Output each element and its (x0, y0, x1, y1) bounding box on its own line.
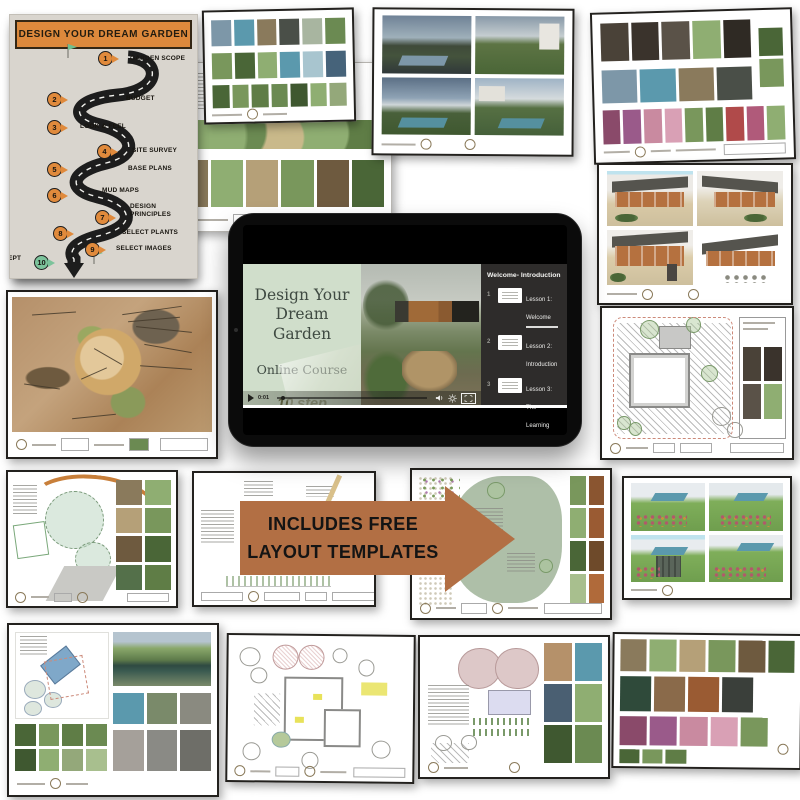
photo-thumb (680, 717, 708, 746)
lesson-label: Lesson 3: The Learning Notion (526, 387, 552, 435)
house-outline (12, 521, 49, 559)
photo-thumb (235, 52, 255, 79)
photo-thumb (631, 22, 660, 61)
module-header: Welcome- Introduction (487, 272, 561, 279)
plan-notes (428, 685, 469, 727)
shrub (744, 214, 766, 223)
planting-row (473, 729, 529, 736)
photo-thumb (619, 676, 651, 711)
photo-thumb (544, 725, 572, 763)
photo-thumb (281, 160, 313, 207)
wall (714, 192, 774, 207)
course-player: Design Your Dream Garden Online Course 1… (243, 264, 567, 405)
pin-tip (61, 192, 68, 200)
tree-canopy (299, 644, 325, 669)
pool (397, 117, 448, 128)
pin-tip (48, 259, 55, 267)
doc-plan-right (600, 306, 794, 460)
photo-thumb (722, 677, 754, 712)
photo-thumb (666, 749, 686, 764)
pool (498, 118, 545, 129)
paving (723, 274, 770, 283)
photo-thumb (601, 70, 637, 104)
step-number: 8 (58, 229, 62, 238)
render-view (697, 230, 783, 285)
doc-renders-house (597, 163, 793, 305)
plan-sketch (15, 632, 109, 719)
photo-thumb (246, 160, 278, 207)
lesson-number: 1 (487, 288, 494, 298)
photo-thumb (705, 107, 724, 142)
photo-thumb (113, 730, 144, 771)
photo-thumb (661, 21, 690, 60)
product-photos (743, 347, 781, 419)
highlight-mark (294, 717, 303, 723)
render-view (607, 171, 693, 226)
doc-cad-plan (225, 633, 416, 784)
photo-thumb (575, 684, 603, 722)
photo-thumb (352, 160, 384, 207)
render-view (382, 77, 471, 135)
photo-thumb (760, 58, 785, 87)
photo-thumb (589, 541, 604, 571)
photo-thumb (685, 108, 704, 143)
photo-row (619, 749, 686, 764)
shrub (610, 273, 626, 282)
doc-moodboard-top (202, 7, 356, 124)
deck (488, 690, 531, 714)
photo-thumb (325, 17, 345, 44)
doc-plan-photos (418, 635, 610, 779)
photo-thumb (257, 52, 277, 79)
doc-moodboard-bottom (611, 632, 800, 770)
photo-thumb (768, 641, 795, 673)
lesson-thumbnail (498, 288, 522, 303)
pin-tip (111, 148, 118, 156)
photo-thumb (279, 18, 299, 45)
photo-thumb (640, 69, 676, 103)
photo-row (600, 19, 751, 62)
fullscreen-icon[interactable] (461, 393, 476, 404)
step-pin: 8 (53, 226, 68, 241)
photo-thumb (692, 20, 721, 59)
video-photo (361, 264, 481, 405)
render-view (475, 16, 564, 74)
step-pin: 4 (97, 144, 112, 159)
photo-thumb (600, 23, 629, 62)
lesson-progress-bar (526, 326, 558, 328)
photo-thumb (232, 84, 249, 107)
photo-thumb (716, 67, 752, 101)
step-label: DESIGN PRINCIPLES (130, 203, 176, 219)
photo-row (619, 676, 753, 712)
photo-thumb (39, 749, 60, 771)
flag-icon (66, 43, 78, 59)
lesson-item[interactable]: 2Lesson 2: Introduction (487, 335, 561, 371)
lesson-text: Lesson 1: Welcome (526, 288, 561, 328)
step-number: 4 (102, 147, 106, 156)
photo-thumb (544, 684, 572, 722)
pool (737, 543, 775, 551)
pool (651, 493, 689, 501)
banner-body: INCLUDES FREE LAYOUT TEMPLATES (240, 501, 446, 575)
pool (398, 56, 449, 67)
highlight-box (361, 683, 387, 696)
banner-line-1: INCLUDES FREE (268, 514, 418, 535)
doc-moodboard-right (590, 7, 796, 165)
step-pin: 7 (95, 210, 110, 225)
step-pin: 10 (34, 255, 49, 270)
photo-thumb (544, 643, 572, 681)
doc-concept-plan (6, 470, 178, 608)
footer-logo (17, 777, 208, 791)
photo-thumb (644, 109, 663, 144)
wall (706, 251, 775, 266)
tablet-screen: Design Your Dream Garden Online Course 1… (243, 225, 567, 435)
volume-icon[interactable] (435, 394, 444, 402)
photo-thumb (575, 725, 603, 763)
boundary-dashed (613, 317, 733, 439)
fireplace (667, 264, 677, 281)
render-view (631, 535, 705, 583)
photo-thumb (116, 480, 142, 505)
slide-panel: Design Your Dream Garden Online Course 1… (243, 264, 361, 405)
footer-logo (777, 744, 788, 755)
photo-thumb (650, 640, 677, 672)
photo-thumb (145, 480, 171, 505)
step-label: BUDGET (126, 95, 155, 103)
pin-tip (61, 96, 68, 104)
photo-column (544, 643, 602, 763)
tablet-mockup: Design Your Dream Garden Online Course 1… (228, 213, 582, 447)
footer-titleblock (610, 442, 785, 454)
photo-thumb (147, 693, 178, 724)
photo-thumb (679, 640, 706, 672)
flower-bed (635, 566, 660, 578)
photo-column (570, 476, 604, 603)
photo-thumb (116, 508, 142, 533)
house-wing (324, 709, 362, 748)
photo-thumb (619, 716, 647, 745)
photo-thumb (257, 19, 277, 46)
photo-thumb (642, 749, 662, 764)
photo-thumb (329, 82, 346, 105)
photo-thumb (211, 20, 231, 47)
photo-thumb (664, 109, 683, 144)
photo-thumb (575, 643, 603, 681)
plan-notes (13, 485, 37, 514)
photo-thumb (212, 53, 232, 80)
lesson-text: Lesson 2: Introduction (526, 335, 561, 371)
photo-thumb (15, 749, 36, 771)
step-number: 2 (52, 95, 56, 104)
pin-tip (99, 246, 106, 254)
photo-thumb (147, 730, 178, 771)
photo-thumb (603, 110, 622, 145)
doc-renders-garden (622, 476, 792, 600)
flower-bed (635, 514, 687, 526)
photo-thumb (654, 677, 686, 712)
footer-titleblock (201, 591, 367, 602)
photo-thumb (767, 106, 786, 141)
pool-photo-large (113, 632, 211, 686)
photo-thumb (213, 85, 230, 108)
photo-thumb (326, 50, 346, 77)
photo-row (211, 17, 345, 46)
photo-thumb (302, 18, 322, 45)
step-pin: 2 (47, 92, 62, 107)
highlight-mark (313, 694, 322, 700)
step-pin: 1 (98, 51, 113, 66)
photo-row (113, 730, 211, 771)
flower-bed (713, 566, 765, 578)
photo-row (113, 693, 211, 724)
step-number: 5 (52, 165, 56, 174)
photo-thumb (291, 83, 308, 106)
step-label: SELECT IMAGES (116, 245, 172, 253)
photo-grid (15, 724, 107, 772)
step-label: BASE PLANS (128, 165, 172, 173)
slide-title: Design Your Dream Garden (247, 286, 357, 344)
progress-handle[interactable] (281, 396, 285, 400)
photo-thumb (623, 110, 642, 145)
pin-tip (67, 230, 74, 238)
progress-bar[interactable] (277, 397, 427, 399)
step-pin: 3 (47, 120, 62, 135)
wall (615, 192, 684, 207)
photo-thumb (589, 574, 604, 604)
footer-logo (631, 585, 784, 595)
footer-logo (212, 108, 348, 120)
photo-thumb (116, 565, 142, 590)
photo-thumb (678, 68, 714, 102)
photo-thumb (252, 84, 269, 107)
step-label: SITE SURVEY (132, 147, 177, 155)
video-controls: 0:01 (243, 391, 481, 405)
render-grid (382, 15, 565, 136)
pin-tip (109, 214, 116, 222)
pool (651, 547, 689, 555)
photo-thumb (310, 83, 327, 106)
promo-collage: DESIGN YOUR DREAM GARDEN 1GARDEN SCOPE2B… (0, 0, 800, 800)
aerial-photo (12, 297, 212, 432)
photo-thumb (271, 83, 288, 106)
step-label: CONCEPT PLAN (9, 255, 32, 271)
photo-thumb (570, 541, 585, 571)
video-time: 0:01 (258, 395, 269, 401)
photo-thumb (764, 347, 782, 382)
pin-tip (61, 166, 68, 174)
photo-thumb (180, 693, 211, 724)
doc-mudmap (6, 290, 218, 459)
pool (734, 493, 768, 501)
photo-column (759, 27, 784, 87)
settings-gear-icon[interactable] (448, 394, 457, 403)
footer-titleblock (15, 592, 170, 603)
footer-titleblock (235, 765, 405, 778)
photo-row (213, 82, 347, 108)
photo-thumb (113, 693, 144, 724)
footer-logo (428, 762, 601, 773)
tree-canopy-mauve (495, 648, 538, 689)
lesson-number: 2 (487, 335, 494, 345)
plan-notes (201, 510, 233, 544)
photo-row (619, 716, 768, 747)
shrub (615, 214, 637, 223)
lesson-label: Lesson 2: Introduction (526, 344, 557, 368)
render-view (697, 171, 783, 226)
step-number: 10 (37, 258, 45, 267)
render-view (382, 15, 471, 73)
photo-thumb (570, 476, 585, 506)
render-view (607, 230, 693, 285)
photo-thumb (710, 717, 738, 746)
step-number: 3 (52, 123, 56, 132)
render-view (709, 535, 783, 583)
footer-logo (604, 142, 786, 159)
photo-thumb (280, 51, 300, 78)
photo-thumb (709, 640, 736, 672)
wall (539, 23, 559, 50)
lesson-list: 1Lesson 1: Welcome2Lesson 2: Introductio… (487, 288, 561, 435)
photo-thumb (145, 536, 171, 561)
tree-canopy (273, 644, 299, 669)
step-label: MUD MAPS (102, 187, 139, 195)
photo-row (601, 67, 752, 104)
paving (254, 693, 280, 725)
render-view (631, 483, 705, 531)
flowchart-card: DESIGN YOUR DREAM GARDEN 1GARDEN SCOPE2B… (9, 14, 198, 279)
step-label: SELECT PLANTS (122, 229, 178, 237)
photo-thumb (589, 476, 604, 506)
flower-bed (719, 514, 771, 526)
photo-thumb (759, 27, 784, 56)
boundary (44, 655, 89, 700)
legend-panel (739, 317, 787, 439)
photo-thumb (86, 749, 107, 771)
planting-row (473, 718, 529, 725)
doc-renders-pool (371, 7, 574, 156)
photo-thumb (86, 724, 107, 746)
player-bottom-strip (243, 405, 567, 408)
lesson-item[interactable]: 1Lesson 1: Welcome (487, 288, 561, 328)
photo-row (603, 106, 786, 145)
photo-thumb (741, 717, 769, 746)
photo-thumb (743, 347, 761, 382)
lesson-number: 3 (487, 378, 494, 388)
step-number: 1 (103, 54, 107, 63)
photo-thumb (116, 536, 142, 561)
render-view (709, 483, 783, 531)
photo-thumb (234, 19, 254, 46)
house (395, 301, 479, 322)
photo-thumb (180, 730, 211, 771)
step-number: 9 (90, 245, 94, 254)
photo-thumb (688, 677, 720, 712)
photo-thumb (743, 384, 761, 419)
step-label: LOOK & FEEL (80, 123, 126, 131)
photo-thumb (15, 724, 36, 746)
render-grid (631, 483, 784, 583)
step-label: GARDEN SCOPE (130, 55, 185, 63)
doc-pool-plan (7, 623, 219, 797)
pond (272, 731, 291, 748)
house (478, 86, 505, 101)
photo-thumb (303, 51, 323, 78)
photo-row (620, 639, 795, 673)
photo-thumb (145, 565, 171, 590)
flowchart-body: 1GARDEN SCOPE2BUDGET3LOOK & FEEL4SITE SU… (10, 45, 197, 278)
photo-thumb (589, 508, 604, 538)
render-view (475, 78, 564, 136)
photo-thumb (619, 749, 639, 764)
photo-thumb (317, 160, 349, 207)
photo-row (176, 160, 385, 207)
photo-thumb (570, 508, 585, 538)
play-icon[interactable] (248, 394, 254, 402)
footer-titleblock (16, 436, 207, 453)
photo-column (116, 480, 171, 590)
photo-thumb (620, 639, 647, 671)
photo-thumb (738, 641, 765, 673)
photo-thumb (62, 724, 83, 746)
camera-icon (234, 328, 238, 332)
arrow-head (445, 486, 515, 592)
tree (539, 559, 553, 573)
render-grid (607, 171, 784, 286)
step-number: 6 (52, 191, 56, 200)
step-pin: 9 (85, 242, 100, 257)
pin-tip (112, 55, 119, 63)
pin-tip (61, 124, 68, 132)
step-number: 7 (100, 213, 104, 222)
photo-thumb (747, 106, 766, 141)
step-pin: 6 (47, 188, 62, 203)
footer-logo (607, 289, 784, 300)
lesson-thumbnail (498, 378, 522, 393)
photo-thumb (62, 749, 83, 771)
photo-thumb (570, 574, 585, 604)
footer-logo (381, 138, 563, 151)
photo-thumb (764, 384, 782, 419)
rocks (402, 351, 457, 390)
photo-thumb (211, 160, 243, 207)
lesson-thumbnail (498, 335, 522, 350)
road-graphic (10, 45, 197, 278)
banner-line-2: LAYOUT TEMPLATES (247, 542, 438, 563)
lesson-sidebar: Welcome- Introduction 1Lesson 1: Welcome… (481, 264, 567, 405)
lesson-label: Lesson 1: Welcome (526, 297, 552, 321)
photo-thumb (145, 508, 171, 533)
photo-row (212, 50, 346, 79)
photo-thumb (726, 107, 745, 142)
step-pin: 5 (47, 162, 62, 177)
photo-thumb (39, 724, 60, 746)
footer-titleblock (420, 602, 602, 614)
free-templates-banner: INCLUDES FREE LAYOUT TEMPLATES (240, 486, 516, 592)
photo-thumb (723, 19, 752, 58)
photo-thumb (649, 716, 677, 745)
